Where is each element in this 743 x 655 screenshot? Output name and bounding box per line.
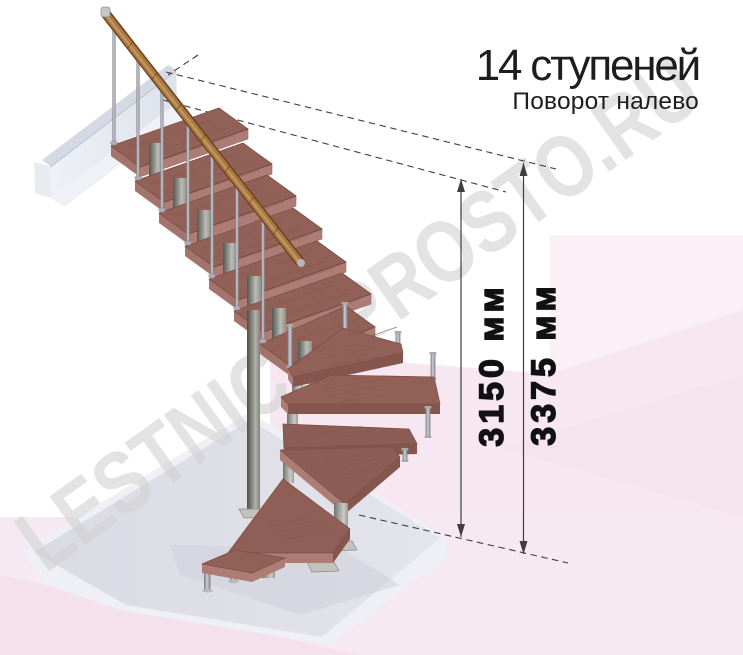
svg-text:Поворот налево: Поворот налево xyxy=(512,88,699,115)
svg-text:3150 мм: 3150 мм xyxy=(473,283,511,446)
svg-text:14 ступеней: 14 ступеней xyxy=(476,41,699,90)
svg-text:3375 мм: 3375 мм xyxy=(525,282,563,445)
